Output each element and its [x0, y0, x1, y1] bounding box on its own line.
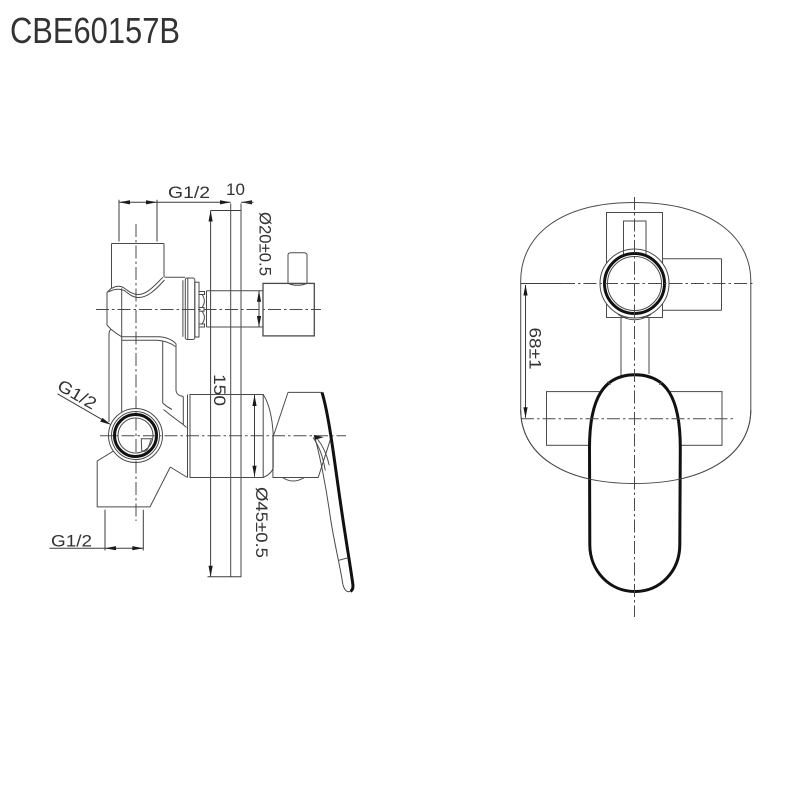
svg-text:10: 10: [226, 180, 245, 199]
svg-text:Ø20±0.5: Ø20±0.5: [256, 212, 275, 276]
svg-text:150: 150: [210, 374, 229, 406]
svg-text:Ø45±0.5: Ø45±0.5: [252, 487, 271, 558]
svg-text:68±1: 68±1: [526, 328, 545, 370]
svg-text:CBE60157B: CBE60157B: [10, 10, 180, 51]
svg-text:G1/2: G1/2: [168, 183, 210, 202]
svg-text:G1/2: G1/2: [51, 532, 92, 551]
